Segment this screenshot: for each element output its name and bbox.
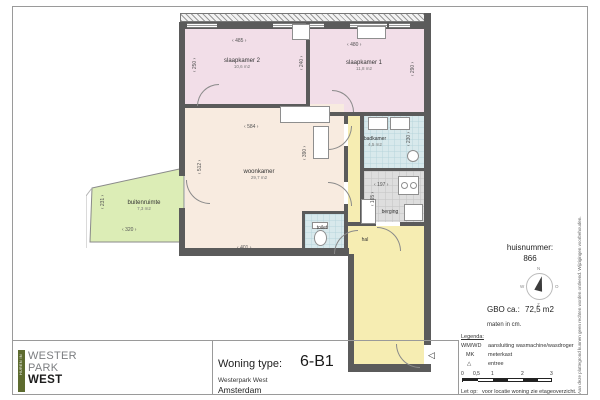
room-name: toilet <box>308 225 336 231</box>
disclaimer-text: Aan deze plattegrond kunnen geen rechten… <box>577 148 582 394</box>
wall-left-lower <box>179 208 185 252</box>
room-area: 11,8 m2 <box>334 66 394 71</box>
titleblock-divider-2 <box>458 340 459 394</box>
dryer-drum-icon <box>410 182 417 189</box>
wall-right-upper <box>424 13 431 345</box>
kitchen-counter <box>280 106 330 123</box>
toilet-bowl-icon <box>314 230 327 246</box>
compass: N O Z W <box>518 265 562 309</box>
dim-berging-depth: 165 <box>370 192 376 206</box>
logo-green-band: HUREN IN <box>18 350 25 392</box>
dim-slaapkamer1-depth: 290 <box>410 62 416 76</box>
washer-box <box>398 176 419 195</box>
room-label-woonkamer: woonkamer 29,7 m2 <box>229 169 289 180</box>
logo: HUREN IN WESTER PARK WEST <box>18 348 138 394</box>
dim-berging-width: 197 <box>374 182 388 188</box>
legend: Legenda: WM/WD aansluiting wasmachine/wa… <box>455 330 585 396</box>
room-label-slaapkamer1: slaapkamer 1 11,8 m2 <box>334 60 394 71</box>
bottom-note-label: Let op: <box>461 389 478 395</box>
room-name: berging <box>375 209 405 215</box>
wall-bottom-woonkamer <box>179 248 349 256</box>
woning-type-value: 6-B1 <box>300 353 334 371</box>
legend-title: Legenda: <box>461 334 484 340</box>
scale-seg <box>478 379 493 381</box>
dim-slaapkamer2-depth: 250 <box>192 58 198 72</box>
dim-woonkamer-width2: 401 <box>237 245 251 251</box>
dim-kitchen-depth: 390 <box>302 146 308 160</box>
project-name: Westerpark West <box>218 377 268 384</box>
legend-label-mk: meterkast <box>488 352 512 358</box>
meterkast-box <box>404 204 423 221</box>
huisnummer-label: huisnummer: <box>495 243 565 252</box>
kitchen-cabinet <box>313 126 329 159</box>
room-area: 7,3 m2 <box>114 206 174 211</box>
bathroom-sink-1 <box>368 117 388 130</box>
legend-key-mk: MK <box>466 352 474 358</box>
city-name: Amsterdam <box>218 385 261 395</box>
entree-triangle-icon: △ <box>467 361 471 367</box>
scale-label-3: 3 <box>550 371 553 377</box>
washer-drum-icon <box>401 182 408 189</box>
scale-label-05: 0,5 <box>473 371 480 377</box>
dim-woonkamer-depth: 512 <box>197 160 203 174</box>
woning-type-label: Woning type: <box>218 358 282 370</box>
legend-key-wmwd: WM/WD <box>461 343 481 349</box>
floorplan-page: ◁ slaapkamer 2 10,6 m2 slaapkamer 1 11,8… <box>0 0 600 400</box>
info-panel: huisnummer: 866 N O Z W GBO ca.: 72,5 m2… <box>455 235 585 335</box>
room-label-badkamer: badkamer 4,5 m2 <box>355 136 395 147</box>
scale-label-0: 0 <box>461 371 464 377</box>
room-label-buitenruimte: buitenruimte 7,3 m2 <box>114 200 174 211</box>
logo-band-text: HUREN IN <box>19 354 23 375</box>
huisnummer-value: 866 <box>495 254 565 263</box>
titleblock-top-line <box>12 340 458 341</box>
compass-east-label: O <box>555 284 559 289</box>
titleblock-divider-1 <box>212 340 213 394</box>
woning-type-block: Woning type: 6-B1 Westerpark West Amster… <box>218 350 448 394</box>
wall-berging-bottom-b <box>400 222 425 226</box>
compass-north-label: N <box>537 266 540 271</box>
room-name: hal <box>355 237 375 243</box>
scale-seg <box>463 381 478 383</box>
shaft-box <box>292 24 310 40</box>
room-area: 4,5 m2 <box>355 142 395 147</box>
scale-seg <box>523 379 538 381</box>
gbo-value: 72,5 m2 <box>525 305 554 314</box>
legend-label-wmwd: aansluiting wasmachine/wasdroger <box>488 343 574 349</box>
scale-label-1: 1 <box>491 371 494 377</box>
wall-badkamer-berging <box>360 168 425 171</box>
dim-buitenruimte-width: 320 <box>122 227 136 233</box>
dim-badkamer-depth: 230 <box>406 132 412 146</box>
room-label-hal: hal <box>355 237 375 243</box>
dim-slaapkamer1-width: 480 <box>347 42 361 48</box>
logo-line-west: WEST <box>28 374 77 386</box>
wall-left-upper <box>179 22 185 176</box>
bathroom-sink-2 <box>390 117 410 130</box>
wardrobe-box <box>357 26 386 39</box>
shower-drain-icon <box>407 150 419 162</box>
dim-buitenruimte-depth: 231 <box>100 195 106 209</box>
room-label-toilet: toilet <box>308 225 336 231</box>
room-label-berging: berging <box>375 209 405 215</box>
bottom-note-text: voor locatie woning zie etageoverzicht. <box>482 389 576 395</box>
room-area: 29,7 m2 <box>229 175 289 180</box>
compass-west-label: W <box>520 284 524 289</box>
room-label-slaapkamer2: slaapkamer 2 10,6 m2 <box>212 58 272 69</box>
wall-woon-hal-b <box>344 146 348 182</box>
units-note: maten in cm. <box>487 322 521 328</box>
window-slaapkamer1-b <box>389 23 410 28</box>
room-area: 10,6 m2 <box>212 64 272 69</box>
scale-seg <box>508 379 523 381</box>
wall-toilet-left <box>302 211 305 251</box>
logo-line-park: PARK <box>28 362 77 374</box>
window-slaapkamer2 <box>187 23 217 28</box>
wall-woon-hal-a <box>344 112 348 124</box>
scale-label-2: 2 <box>521 371 524 377</box>
scale-seg <box>493 379 508 381</box>
dim-woonkamer-width: 584 <box>244 124 258 130</box>
legend-label-entree: entree <box>488 361 504 367</box>
dim-middle-depth: 240 <box>299 56 305 70</box>
logo-line-wester: WESTER <box>28 350 77 362</box>
dim-slaapkamer2-width: 485 <box>232 38 246 44</box>
exterior-hatch-band <box>180 13 431 22</box>
scale-bar <box>462 378 552 382</box>
gbo-label: GBO ca.: <box>487 305 520 314</box>
wall-toilet-top <box>302 211 348 214</box>
